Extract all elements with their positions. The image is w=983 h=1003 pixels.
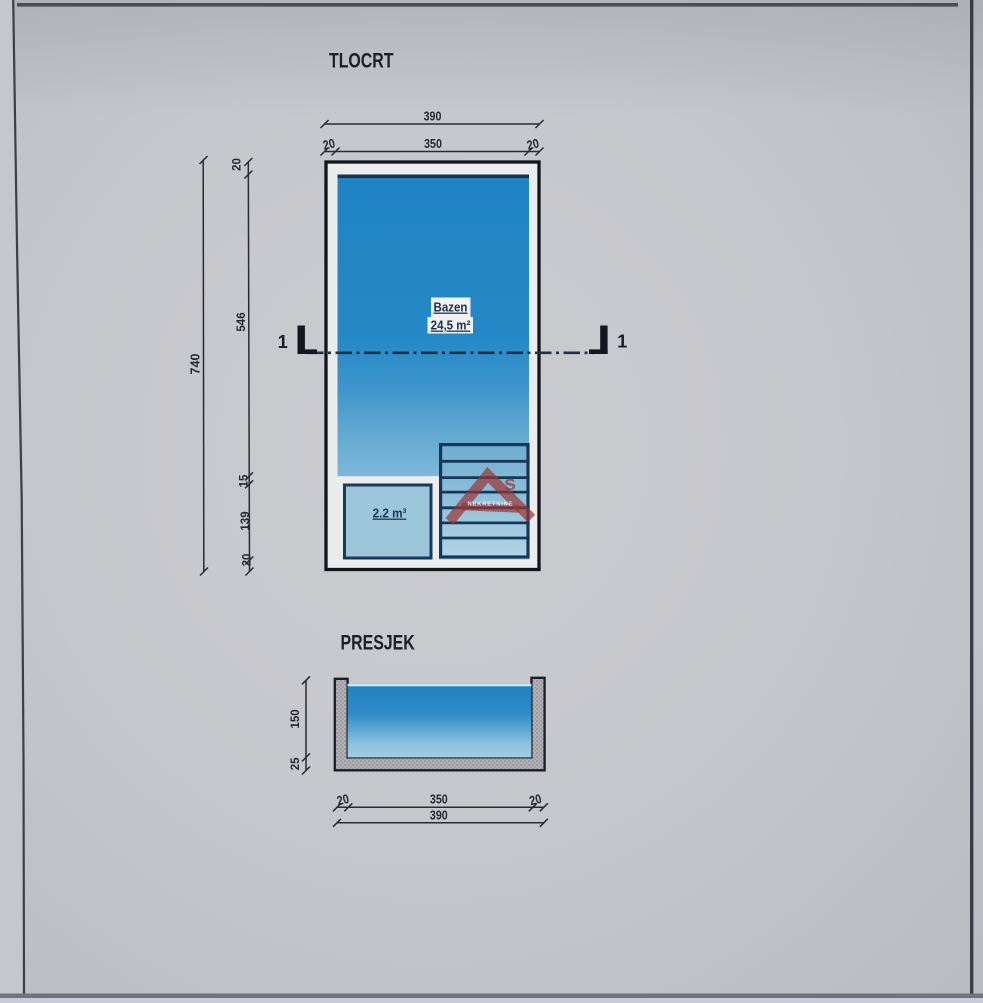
svg-text:25: 25: [290, 757, 302, 770]
svg-text:24,5 m²: 24,5 m²: [431, 318, 471, 333]
svg-text:20: 20: [232, 158, 244, 171]
svg-text:139: 139: [240, 511, 252, 530]
svg-text:350: 350: [424, 136, 442, 151]
svg-text:TLOCRT: TLOCRT: [329, 49, 394, 73]
svg-text:1: 1: [617, 332, 627, 352]
svg-text:546: 546: [236, 312, 248, 331]
svg-text:390: 390: [430, 807, 448, 822]
svg-text:s: s: [503, 472, 516, 496]
svg-text:PRESJEK: PRESJEK: [341, 631, 416, 655]
svg-text:1: 1: [278, 332, 288, 352]
svg-text:150: 150: [290, 709, 302, 728]
svg-text:350: 350: [430, 791, 448, 806]
svg-text:NEKRETNINE: NEKRETNINE: [468, 502, 514, 508]
svg-text:15: 15: [239, 474, 251, 487]
svg-text:390: 390: [424, 108, 442, 123]
svg-text:740: 740: [189, 354, 203, 375]
svg-text:Bazen: Bazen: [434, 300, 468, 315]
svg-text:20: 20: [242, 554, 254, 567]
svg-text:2.2 m³: 2.2 m³: [373, 506, 407, 521]
